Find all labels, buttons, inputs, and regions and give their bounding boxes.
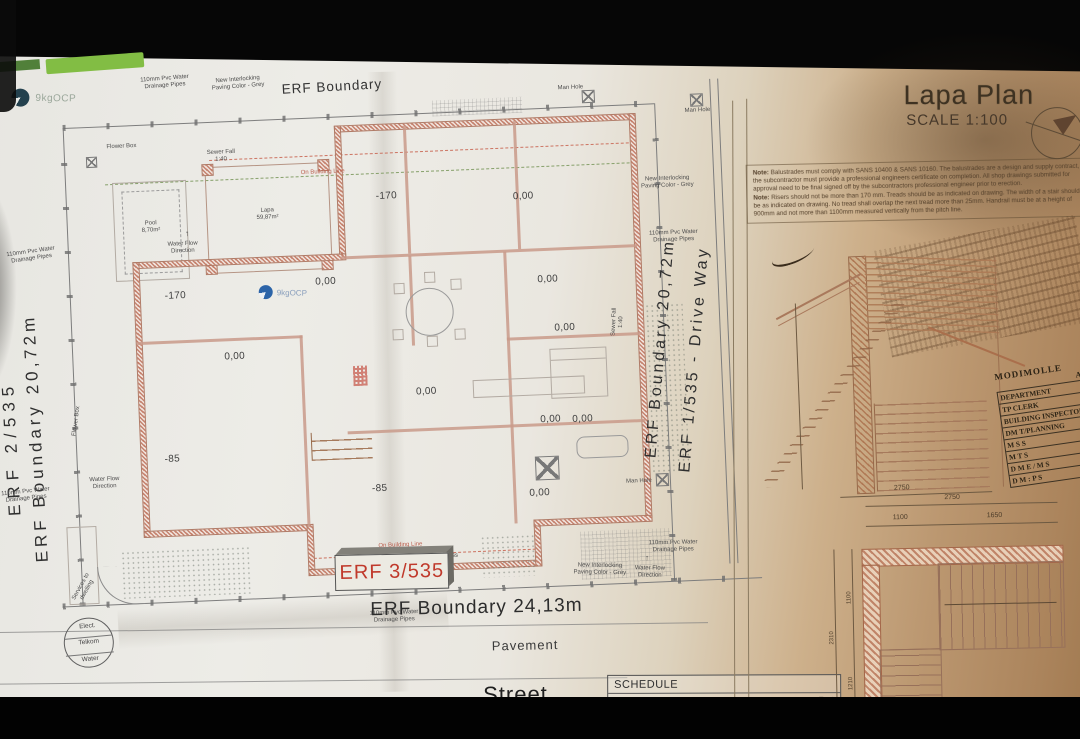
note-heading: Note: [753,194,769,201]
man-hole-label: Man Hole [626,478,652,486]
dimension-value: 1210 [848,677,854,690]
photo-black-bar [0,697,1080,739]
paving-label: New Interlocking Paving Color - Grey [208,74,267,93]
bathtub [576,435,629,459]
man-hole-symbol [86,157,97,168]
sheet-title: Lapa Plan [903,80,1034,111]
dimension-value: 1650 [987,512,1003,519]
dimension-line [866,522,1058,527]
wall-segment [133,263,149,537]
floor-level: 0,00 [554,322,575,334]
man-hole-label: Man Hole [684,107,710,115]
floor-level: 0,00 [315,276,336,288]
stand-number: ERF 3/535 [334,553,449,591]
dimension-value: 2310 [829,631,835,644]
lapa-label: Lapa 59,87m² [242,207,293,223]
water-flow-label: Water Flow Direction [633,565,667,580]
partition-wall [348,425,511,435]
floor-level: 0,00 [416,386,437,398]
boundary-bottom-label: ERF Boundary 24,13m [370,595,583,621]
grass-texture [120,546,252,599]
photo-of-building-plan: 9kgOCP 9kgOCP [0,0,1080,739]
dimension-value: 2750 [944,494,960,501]
lapa-column [206,264,216,274]
plan-sheet: 9kgOCP 9kgOCP [0,56,1080,720]
notes-block: Note: Balustrades must comply with SANS … [746,158,1080,224]
water-flow-label: Water Flow Direction [87,476,122,492]
wall-segment [307,525,314,575]
shadow-left-edge [0,175,18,406]
beam-line [776,273,862,320]
driveway-edge-line [717,79,738,564]
stair-flight-upper [938,561,1066,651]
chair [394,284,403,293]
shower [535,456,560,481]
partition-wall [300,335,311,527]
sewer-fall-label: Sewer Fall 1:40 [611,307,627,338]
dimension-value: 1100 [846,591,852,604]
drainage-label: 110mm Pvc Water Drainage Pipes [136,74,193,92]
stair-section-drawing: 2750 [773,241,1013,510]
dimension-value: 1100 [893,514,908,521]
pavement-label: Pavement [492,637,559,653]
schedule-title: SCHEDULE [608,675,840,694]
pool-area: 8,70m² [142,227,161,234]
note-heading: Note: [753,169,769,176]
boundary-left-label: ERF Boundary 20,72m [19,313,53,563]
chair [428,337,437,346]
water-flow-label: Water Flow Direction [166,240,201,256]
pool-name: Pool [145,220,157,226]
drainage-label: 110mm Pvc Water Drainage Pipes [645,539,701,554]
dimension-line [865,502,1057,507]
beam-line [778,282,860,326]
man-hole-label: Man Hole [557,84,583,92]
lapa-column [202,165,212,175]
man-hole-symbol [690,93,704,107]
bed [550,348,607,398]
partition-wall [403,126,411,254]
building-line-red [209,142,629,161]
chair [451,280,460,289]
north-arrow-icon [1031,107,1080,160]
dimension-value: 2750 [894,484,910,492]
stair-steps [874,399,990,491]
floor-level: 0,00 [540,413,561,425]
pool-label: Pool 8,70m² [131,220,172,236]
dining-table [405,287,455,337]
floor-level: -170 [165,290,187,302]
green-tape [45,52,144,74]
stair-landing [878,563,941,650]
flower-box-label: Flower Box [101,143,141,152]
chair [455,329,464,338]
lapa-column [322,259,332,269]
wall-segment [145,525,313,537]
stairs [311,430,373,461]
floor-level: 0,00 [513,190,534,202]
partition-wall [513,121,521,249]
utility-telkom: Telkom [64,635,113,649]
paving-label: New Interlocking Paving Color - Grey [638,175,697,191]
lapa-area: 59,87m² [256,214,278,221]
flow-arrow: ↑ [645,553,649,562]
chair [393,330,402,339]
wall-segment [335,126,345,256]
floor-level: 0,00 [572,413,593,425]
floor-level: 0,00 [537,273,558,285]
utility-water: Water [66,651,115,665]
approval-table: MODIMOLLE APPROVAL DEPARTMENT TP CLERK B… [994,351,1080,488]
floor-level: 0,00 [224,351,245,363]
lapa-name: Lapa [260,207,274,214]
grass-texture [480,534,537,578]
partition-wall [340,244,637,259]
floor-level: -85 [164,453,180,465]
man-hole-symbol [656,473,670,487]
stair-plan-drawing: 2750 1100 1650 1100 1210 2310 [850,490,1075,713]
drainage-label: 110mm Pvc Water Drainage Pipes [645,229,702,245]
sheet-scale: SCALE 1:100 [906,112,1008,129]
wall-segment [534,516,651,526]
floor-level: -170 [376,190,398,202]
partition-wall [137,335,303,345]
floor-level: -85 [372,483,388,495]
paving-label: New Interlocking Paving Color - Grey [571,562,629,577]
stand-number-box: ERF 3/535 [334,553,449,591]
sewer-fall-label: Sewer Fall 1:40 [204,149,239,165]
fireplace [353,366,368,387]
paving-texture [432,97,523,117]
man-hole-symbol [582,90,596,104]
floor-level: 0,00 [529,487,550,499]
dimension-line [795,303,803,489]
flow-arrow: ↑ [185,229,189,238]
utilities-circle: Elect. Telkom Water [62,615,116,669]
photo-dark-corner [0,0,16,112]
chair [425,273,434,282]
